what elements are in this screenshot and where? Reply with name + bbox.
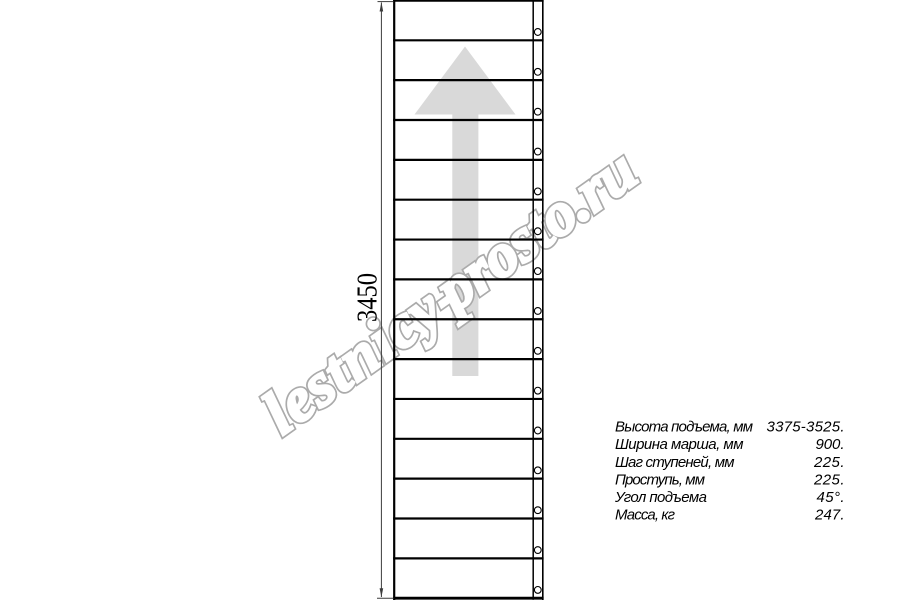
svg-text:Угол подъема: Угол подъема <box>614 489 707 506</box>
svg-text:45°.: 45°. <box>817 489 845 506</box>
svg-text:247.: 247. <box>814 507 845 524</box>
svg-text:225.: 225. <box>813 454 845 471</box>
svg-text:Высота подъема, мм: Высота подъема, мм <box>615 419 753 436</box>
svg-text:3450: 3450 <box>351 273 383 322</box>
svg-text:900.: 900. <box>816 436 845 453</box>
svg-text:Масса, кг: Масса, кг <box>615 507 676 524</box>
svg-text:Проступь, мм: Проступь, мм <box>615 471 705 488</box>
svg-text:Шаг ступеней, мм: Шаг ступеней, мм <box>615 454 735 471</box>
svg-text:225.: 225. <box>813 471 845 488</box>
svg-text:Ширина марша, мм: Ширина марша, мм <box>615 436 744 453</box>
svg-text:3375-3525.: 3375-3525. <box>767 419 845 436</box>
